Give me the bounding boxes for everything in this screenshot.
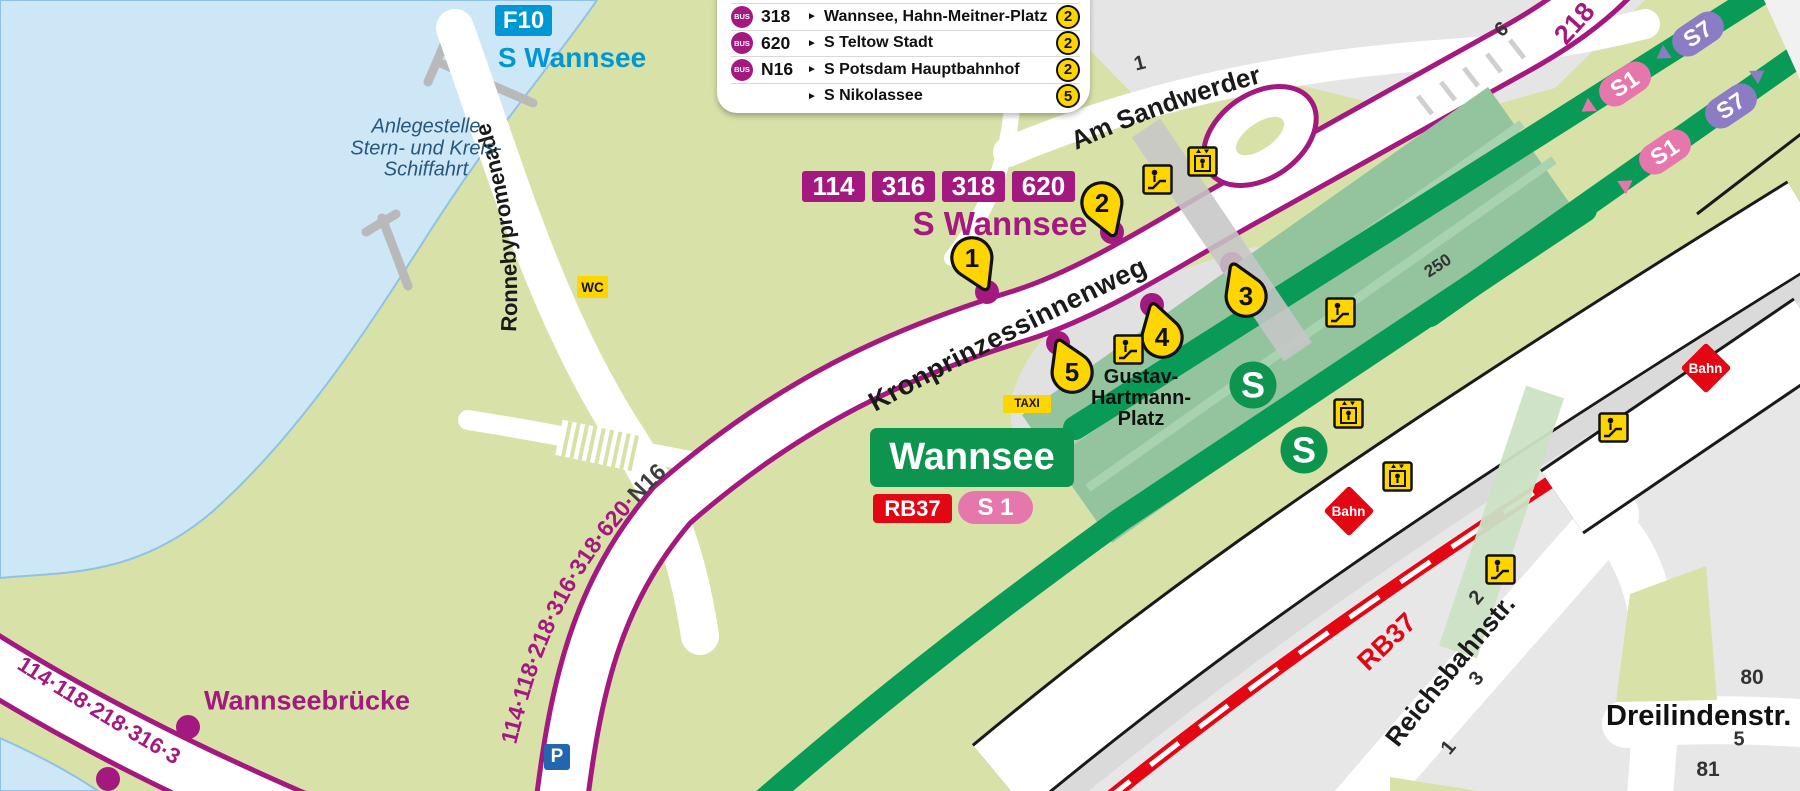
legend-route: 318	[761, 6, 807, 27]
bus-route-box-318: 318	[942, 171, 1005, 202]
direction-arrow-icon: ►	[807, 91, 824, 102]
harbor-label-line2: Stern- und Kreis-	[350, 138, 501, 160]
taxi-badge: TAXI	[1003, 395, 1051, 413]
platz-label-line2: Hartmann-	[1091, 388, 1191, 409]
svg-text:2: 2	[1095, 188, 1109, 218]
escalator-icon	[1485, 554, 1516, 585]
bus-mode-icon: BUS	[731, 6, 753, 28]
ferry-station-label: S Wannsee	[498, 42, 646, 74]
rb37-line-chip: RB37	[873, 494, 952, 523]
legend-route: N16	[761, 59, 807, 80]
direction-arrow-icon: ►	[807, 11, 824, 22]
escalator-icon	[1598, 412, 1629, 443]
sbahn-logo: S	[1230, 362, 1277, 409]
station-name-box: Wannsee	[870, 428, 1074, 487]
bus-mode-icon: BUS	[731, 59, 753, 81]
bus-mode-icon: BUS	[731, 32, 753, 54]
bus-stop-name-label: S Wannsee	[913, 205, 1088, 243]
legend: BUS 318 ► Wannsee, Hahn-Meitner-Platz 2 …	[717, 0, 1090, 113]
svg-text:4: 4	[1155, 322, 1170, 352]
s1-line-chip: S 1	[958, 491, 1033, 524]
house-number: 5	[1733, 729, 1744, 752]
harbor-label-line1: Anlegestelle	[350, 117, 501, 139]
legend-stop-number: 5	[1056, 84, 1080, 108]
legend-stop-number: 2	[1056, 5, 1080, 29]
wannsee-station-map: Kronprinzessinnenweg 114·118·218·316·318…	[0, 0, 1800, 791]
svg-text:1: 1	[965, 243, 979, 273]
bus-route-box-114: 114	[802, 171, 865, 202]
basemap: Kronprinzessinnenweg 114·118·218·316·318…	[0, 0, 1800, 791]
house-number: 80	[1740, 666, 1763, 690]
bus-route-box-620: 620	[1012, 171, 1075, 202]
elevator-icon	[1382, 461, 1413, 492]
legend-stop-number: 2	[1056, 31, 1080, 55]
wc-badge: WC	[577, 276, 608, 298]
wannseebruecke-label: Wannseebrücke	[204, 686, 410, 717]
legend-row: BUS N16 ► S Potsdam Hauptbahnhof 2	[731, 56, 1080, 83]
escalator-icon	[1113, 334, 1144, 365]
legend-destination: S Nikolassee	[824, 87, 1056, 105]
platz-label-line3: Platz	[1091, 410, 1191, 431]
sbahn-logo: S	[1281, 427, 1328, 474]
gustav-hartmann-platz-label: Gustav- Hartmann- Platz	[1091, 367, 1191, 431]
legend-row: BUS 620 ► S Teltow Stadt 2	[731, 30, 1080, 57]
legend-route: 620	[761, 33, 807, 54]
elevator-icon	[1333, 398, 1364, 429]
dreilindenstr-label: Dreilindenstr.	[1606, 700, 1791, 733]
harbor-label-line3: Schiffahrt	[350, 160, 501, 182]
ferry-line-badge: F10	[495, 5, 552, 36]
bus-route-box-316: 316	[872, 171, 935, 202]
escalator-icon	[1142, 164, 1173, 195]
legend-stop-number: 2	[1056, 58, 1080, 82]
legend-row: BUS 318 ► Wannsee, Hahn-Meitner-Platz 2	[731, 3, 1080, 30]
svg-text:5: 5	[1065, 357, 1079, 387]
direction-arrow-icon: ►	[807, 38, 824, 49]
platz-label-line1: Gustav-	[1091, 367, 1191, 388]
legend-destination: S Potsdam Hauptbahnhof	[824, 61, 1056, 79]
svg-text:3: 3	[1239, 281, 1253, 311]
legend-destination: Wannsee, Hahn-Meitner-Platz	[824, 8, 1056, 26]
legend-destination: S Teltow Stadt	[824, 34, 1056, 52]
elevator-icon	[1187, 146, 1218, 177]
house-number: 81	[1696, 758, 1719, 782]
parking-badge: P	[544, 744, 570, 770]
harbor-label: Anlegestelle Stern- und Kreis- Schiffahr…	[350, 117, 501, 182]
escalator-icon	[1325, 297, 1356, 328]
direction-arrow-icon: ►	[807, 64, 824, 75]
legend-row: ► S Nikolassee 5	[731, 83, 1080, 110]
